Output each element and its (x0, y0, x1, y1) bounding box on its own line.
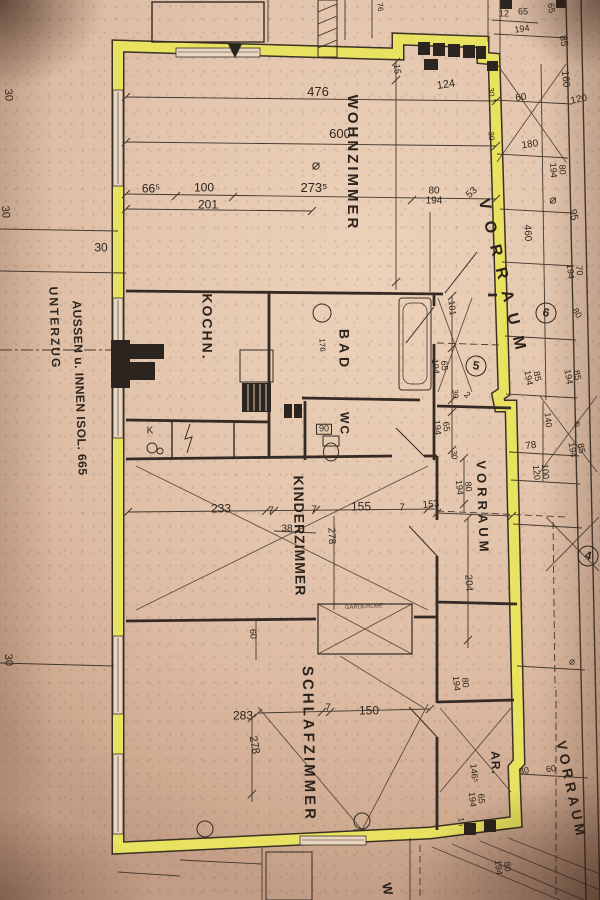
room-label-vorraum-mid: VORRAUM (474, 460, 490, 556)
dimension-label: 180 (521, 139, 539, 151)
dimension-label: ⌀ (549, 194, 556, 205)
dimension-label: 80 194 (494, 859, 513, 876)
dimension-label: 38 (281, 524, 292, 534)
dimension-label: 76 (376, 2, 384, 12)
fixture-label-garderobe: GARDEROBE (345, 604, 384, 612)
fixture-label-k: K (147, 426, 154, 436)
dimension-label: 278 (247, 735, 260, 755)
dimension-label: 100 120 (532, 464, 551, 481)
dimension-label: 85 194 (567, 440, 586, 458)
dimension-label: 30 (2, 653, 13, 666)
dimension-label: 146⁵ (469, 763, 479, 783)
dimension-label: 160 (559, 70, 570, 88)
dimension-label: 65 194 (433, 419, 452, 436)
room-label-vorraum-bottom: VORRAUM (554, 740, 588, 841)
dimension-label: 124 (436, 79, 456, 92)
dimension-label: 100 (194, 182, 214, 193)
dimension-label: 30 (2, 88, 13, 101)
dimension-label: 30 (0, 205, 11, 218)
dimension-label: 153 (422, 500, 439, 511)
room-label-cutoff: W (380, 882, 394, 896)
dimension-label: 70 194 (566, 263, 585, 280)
margin-note-isolierung: AUSSEN u. INNEN ISOL. 665 (70, 300, 87, 475)
dimension-label: 85 (557, 35, 568, 48)
dimension-label: 30 (487, 87, 495, 97)
dimension-label: 140 (543, 412, 553, 428)
dimension-label: ⌀ (574, 419, 580, 429)
dimension-label: 283 (233, 710, 253, 721)
dimension-label: 201 (198, 199, 218, 210)
dimension-label: 85 194 (563, 367, 582, 385)
dimension-label: 60 (248, 629, 258, 640)
dimension-label: 66⁵ (142, 183, 160, 194)
floorplan-photo: WOHNZIMMERKOCHN.BADWCKINDERZIMMERSCHLAFZ… (0, 0, 600, 900)
dimension-label: 460 (522, 224, 532, 241)
dimension-label: 80 194 (455, 479, 474, 496)
dimension-label: 80 194 (549, 162, 567, 178)
dimension-label: 7 (268, 506, 274, 516)
dimension-label: 30 (487, 131, 495, 141)
dimension-label: 85 194 (523, 368, 542, 386)
dimension-label: 12 (499, 10, 509, 19)
room-label-kochnische: KOCHN. (200, 293, 213, 360)
plan-labels: WOHNZIMMERKOCHN.BADWCKINDERZIMMERSCHLAFZ… (0, 0, 600, 900)
dimension-label: 30 (94, 242, 107, 253)
margin-note-unterzug: UNTERZUG (47, 286, 61, 369)
position-marker-4: 4 (575, 543, 600, 569)
boxed-dimension-90: 90 (316, 424, 332, 435)
dimension-label: 600 (329, 128, 351, 140)
dimension-label: 30 (450, 450, 458, 460)
floorplan-drawing: WOHNZIMMERKOCHN.BADWCKINDERZIMMERSCHLAFZ… (0, 0, 600, 900)
dimension-label: 30 (518, 766, 529, 776)
position-marker-6: 6 (533, 300, 559, 326)
dimension-label: 65 194 (431, 358, 450, 375)
dimension-label: 7 (325, 703, 331, 713)
dimension-label: 65 (546, 2, 556, 13)
dimension-label: 233 (211, 503, 231, 514)
dimension-label: 80 194 (452, 675, 471, 692)
dimension-label: 120 (570, 94, 588, 107)
dimension-label: 204 (463, 574, 473, 591)
dimension-label: 2 (462, 390, 471, 400)
dimension-label: 80 (571, 306, 584, 319)
room-label-vorraum-top: VORRAUM (475, 197, 530, 362)
dimension-label: 278 (326, 527, 336, 544)
room-label-schlafzimmer: SCHLAFZIMMER (300, 666, 317, 822)
dimension-label: 7 (399, 503, 405, 513)
position-marker-5: 5 (464, 354, 488, 378)
dimension-label: 95 (567, 209, 579, 222)
dimension-label: 194 (514, 24, 530, 35)
dimension-label: ⌀ (312, 158, 320, 171)
room-label-wohnzimmer: WOHNZIMMER (345, 95, 359, 232)
dimension-label: 78 (525, 441, 537, 452)
dimension-label: 176 (318, 338, 326, 352)
dimension-label: 15 (457, 817, 465, 827)
dimension-label: 15 (392, 64, 401, 75)
dimension-label: 273⁵ (300, 182, 327, 194)
dimension-label: 65 194 (468, 791, 487, 808)
dimension-label: 60 (515, 93, 527, 104)
dimension-label: 80 194 (426, 187, 443, 206)
dimension-label: 150 (359, 705, 379, 716)
room-label-abstellraum: AR. (489, 751, 501, 775)
dimension-label: 476 (307, 86, 329, 98)
dimension-label: 53 (465, 186, 480, 201)
dimension-label: 65 (518, 8, 528, 17)
room-label-wc: WC (338, 412, 349, 436)
dimension-label: ⌀ (569, 657, 575, 667)
dimension-label: 30 (451, 389, 459, 399)
dimension-label: 7 (311, 505, 317, 515)
dimension-label: 60 (545, 764, 556, 774)
room-label-kinderzimmer: KINDERZIMMER (291, 475, 306, 596)
dimension-label: 101 (447, 300, 457, 316)
dimension-label: 155 (351, 501, 371, 512)
room-label-bad: BAD (337, 329, 350, 371)
